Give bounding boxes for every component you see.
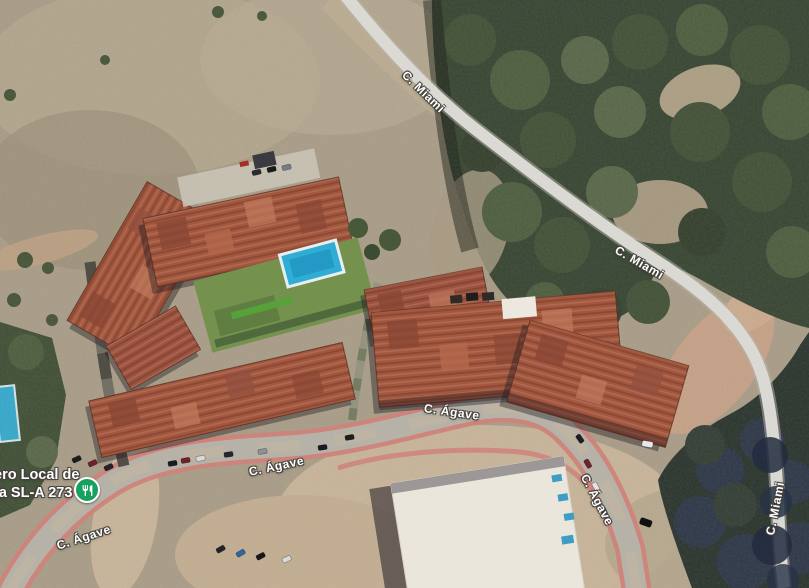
white-roof-section [501,296,537,319]
parked-car [318,444,328,450]
fork-knife-glyph [81,484,94,497]
poi-name-line2: ta SL-A 273 [0,484,79,502]
terrain-layer [0,0,809,588]
restaurant-icon[interactable] [74,477,100,503]
parked-car [258,448,268,454]
poi-name-line1: ero Local de [0,466,79,484]
poi-name[interactable]: ero Local de ta SL-A 273 [0,466,79,502]
parked-car [224,451,234,457]
satellite-map[interactable]: C. Miami C. Miami C. Miami C. Ágave C. Á… [0,0,809,588]
